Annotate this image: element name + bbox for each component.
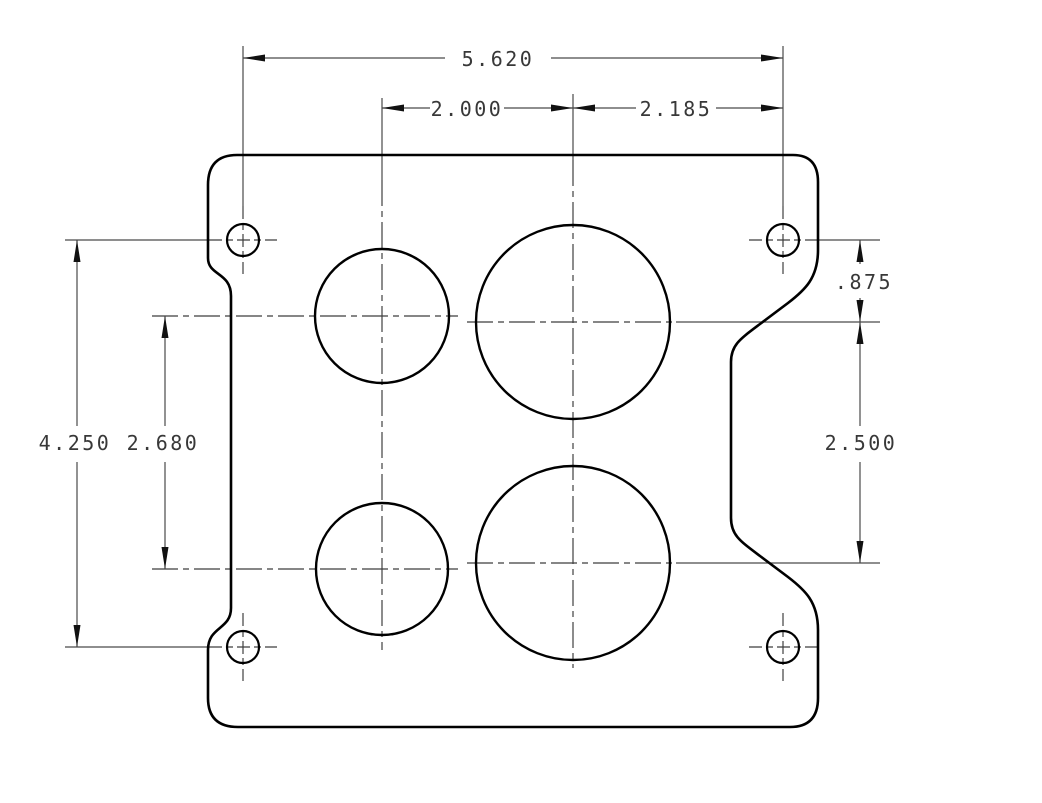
dim-label-small-bore-rows: 2.680 bbox=[127, 431, 200, 455]
arrowhead bbox=[162, 316, 169, 338]
arrowhead bbox=[551, 105, 573, 112]
dim-label-stud-span-horizontal: 5.620 bbox=[462, 47, 535, 71]
arrowhead bbox=[857, 541, 864, 563]
dim-label-bore-column-to-stud: 2.185 bbox=[640, 97, 713, 121]
dimension-lines bbox=[74, 55, 864, 648]
gasket-technical-drawing: 5.620 2.000 2.185 .875 2.500 4.250 2.680 bbox=[0, 0, 1042, 803]
extension-lines bbox=[65, 46, 880, 668]
arrowhead bbox=[857, 240, 864, 262]
arrowhead bbox=[382, 105, 404, 112]
dim-label-stud-to-primary-row: .875 bbox=[835, 270, 893, 294]
stud-holes bbox=[227, 224, 799, 663]
arrowhead bbox=[857, 300, 864, 322]
plate-outline bbox=[208, 155, 818, 727]
arrowhead bbox=[761, 55, 783, 62]
arrowhead bbox=[74, 240, 81, 262]
stud-hole-center-marks bbox=[209, 206, 817, 681]
arrowhead bbox=[761, 105, 783, 112]
drawing-canvas: 5.620 2.000 2.185 .875 2.500 4.250 2.680 bbox=[0, 0, 1042, 803]
bores bbox=[315, 225, 670, 660]
dim-label-primary-to-secondary-row: 2.500 bbox=[825, 431, 898, 455]
dim-label-bore-columns-left: 2.000 bbox=[431, 97, 504, 121]
arrowhead bbox=[74, 625, 81, 647]
arrowhead bbox=[243, 55, 265, 62]
arrowhead bbox=[573, 105, 595, 112]
arrowhead bbox=[857, 322, 864, 344]
dim-label-stud-span-vertical: 4.250 bbox=[39, 431, 112, 455]
arrowhead bbox=[162, 547, 169, 569]
